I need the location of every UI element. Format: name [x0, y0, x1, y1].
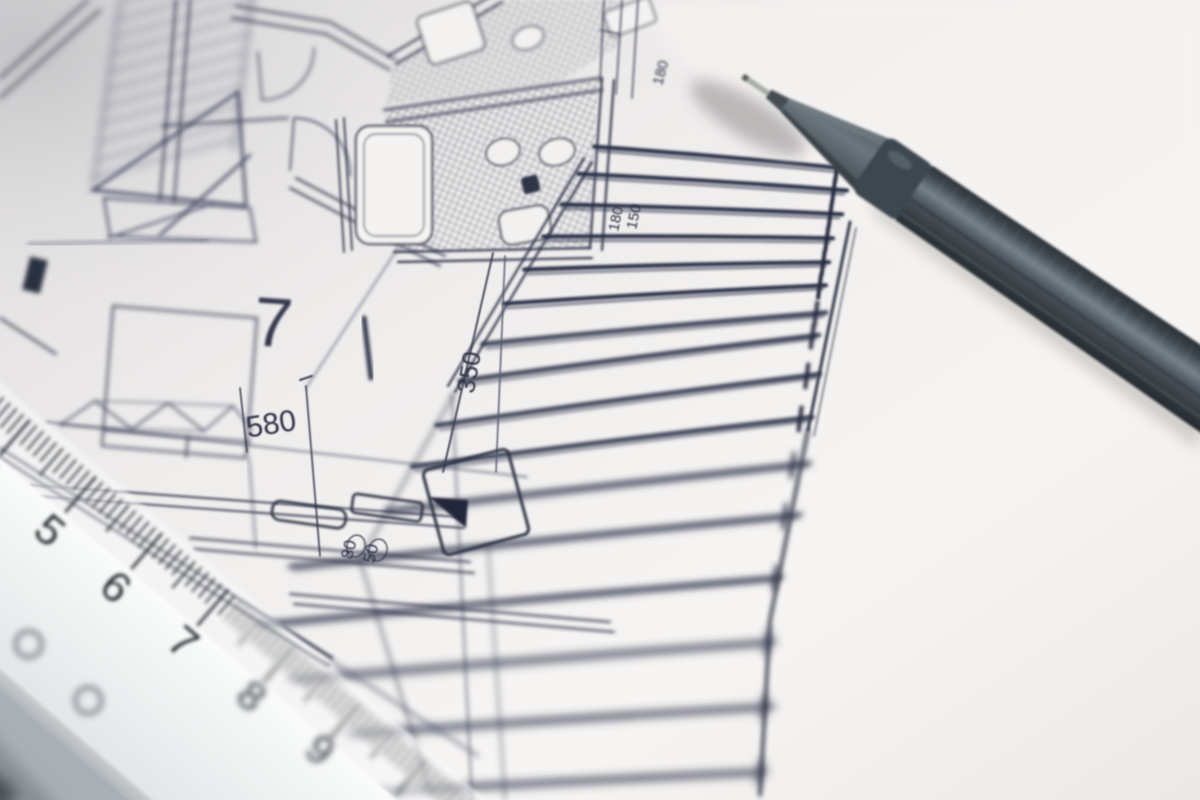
svg-text:7: 7	[251, 282, 295, 363]
